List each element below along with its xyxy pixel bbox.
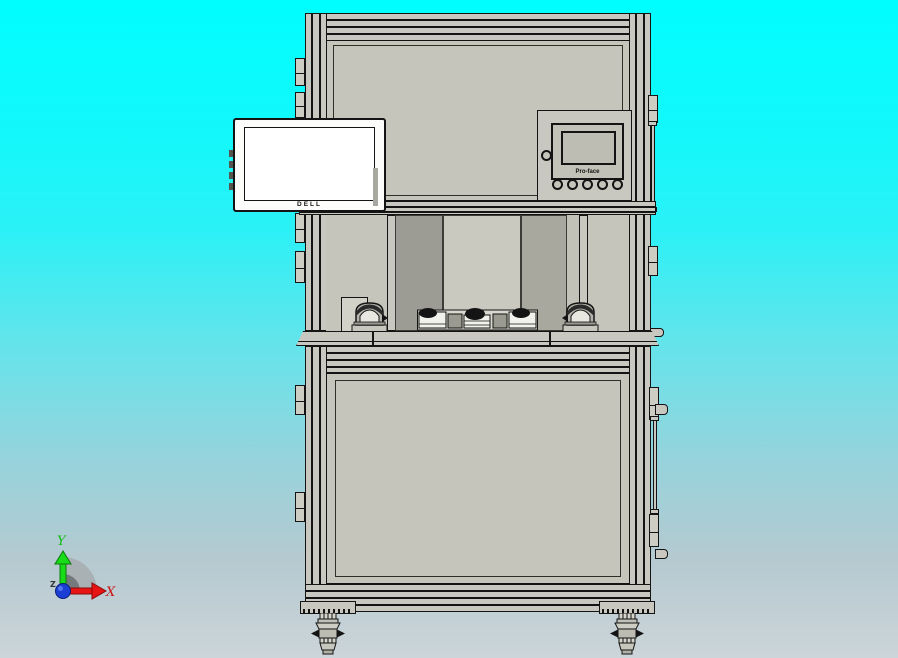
hinge-right-2[interactable] [648,246,658,276]
foot-collar [617,619,637,623]
wheel-flange [636,630,644,638]
frame-line [306,19,650,21]
monitor-button[interactable] [229,172,233,179]
right-clamp[interactable] [562,298,599,333]
caster-foot-left[interactable] [306,613,350,655]
top-rail [305,13,651,41]
lip-notch [549,332,551,345]
hmi-panel[interactable]: Pro-face [537,110,632,201]
hmi-button-4[interactable] [597,179,608,190]
orientation-triad[interactable]: Z Y X [40,533,125,605]
monitor-button[interactable] [229,150,233,157]
frame-line [306,33,650,35]
fixture-knob [512,308,530,318]
door-handle-upper[interactable] [648,121,658,213]
clamp-hook [382,314,388,322]
clamp-base [352,325,387,332]
wheel-flange [337,630,345,638]
monitor-brand-label: DELL [235,200,384,209]
fixture-knob [419,308,437,318]
wheel-body [618,629,636,638]
wheel-body [319,629,337,638]
hmi-brand-label: Pro-face [553,168,622,177]
lip-notch [372,332,374,345]
right-post-lower [629,346,651,612]
fixture-spacer [448,314,462,328]
frame-line [306,359,650,361]
clamp-base [563,325,598,332]
hinge-left-5[interactable] [295,385,305,415]
fixture-spacer [493,314,507,328]
monitor[interactable]: DELL [233,118,386,212]
lower-door-panel[interactable] [326,373,630,584]
frame-line [306,366,650,368]
hinge-left-2[interactable] [295,92,305,118]
hmi-bezel: Pro-face [551,123,624,180]
foot-cup [320,643,336,650]
foot-pad [323,650,333,654]
left-post-lower [305,346,327,612]
frame-line [635,347,637,611]
handle-bar [651,125,655,209]
frame-line [306,597,650,599]
origin-highlight [58,586,63,591]
frame-line [306,26,650,28]
hmi-screen[interactable] [561,131,616,165]
origin-sphere[interactable] [56,584,71,599]
door-seam [335,380,621,577]
latch-peg-2[interactable] [655,404,668,415]
caster-foot-right[interactable] [605,613,649,655]
z-axis-label: Z [50,580,56,589]
frame-line [319,347,321,611]
foot-cup [619,643,635,650]
hinge-right-4[interactable] [649,514,659,547]
hmi-button-2[interactable] [567,179,578,190]
table-lip [296,331,659,346]
frame-line [635,14,637,330]
frame-line [311,347,313,611]
hmi-power-button[interactable] [541,150,552,161]
frame-line [306,352,650,354]
left-clamp[interactable] [351,298,388,333]
wheel-flange [311,630,319,638]
hinge-left-4[interactable] [295,251,305,283]
frame-line [297,341,658,342]
hinge-left-1[interactable] [295,58,305,86]
cad-viewport: DELL Pro-face Z Y X [0,0,898,658]
frame-line [643,347,645,611]
x-axis-label: X [105,585,116,600]
y-axis-label: Y [57,534,67,549]
foot-pad [622,650,632,654]
frame-line [643,14,645,330]
monitor-button[interactable] [229,183,233,190]
monitor-button[interactable] [229,161,233,168]
clamp-plate [354,322,385,325]
handle-bar [653,420,657,511]
wheel-flange [610,630,618,638]
clamp-plate [565,322,596,325]
hinge-left-6[interactable] [295,492,305,522]
center-fixture[interactable] [417,304,538,333]
foot-collar [318,619,338,623]
lower-rail [305,346,651,373]
x-axis-arrowhead[interactable] [92,583,106,599]
monitor-screen[interactable] [244,127,375,201]
frame-line [306,590,650,592]
wheel-top [316,623,340,629]
hmi-button-3[interactable] [582,179,593,190]
clamp-hook [562,314,568,322]
hinge-left-3[interactable] [295,213,305,243]
door-handle-lower[interactable] [650,416,660,515]
hmi-button-1[interactable] [552,179,563,190]
fixture-knob [465,308,485,320]
latch-peg-3[interactable] [655,549,668,559]
hmi-button-5[interactable] [612,179,623,190]
wheel-top [615,623,639,629]
hinge-right-1[interactable] [648,95,658,123]
